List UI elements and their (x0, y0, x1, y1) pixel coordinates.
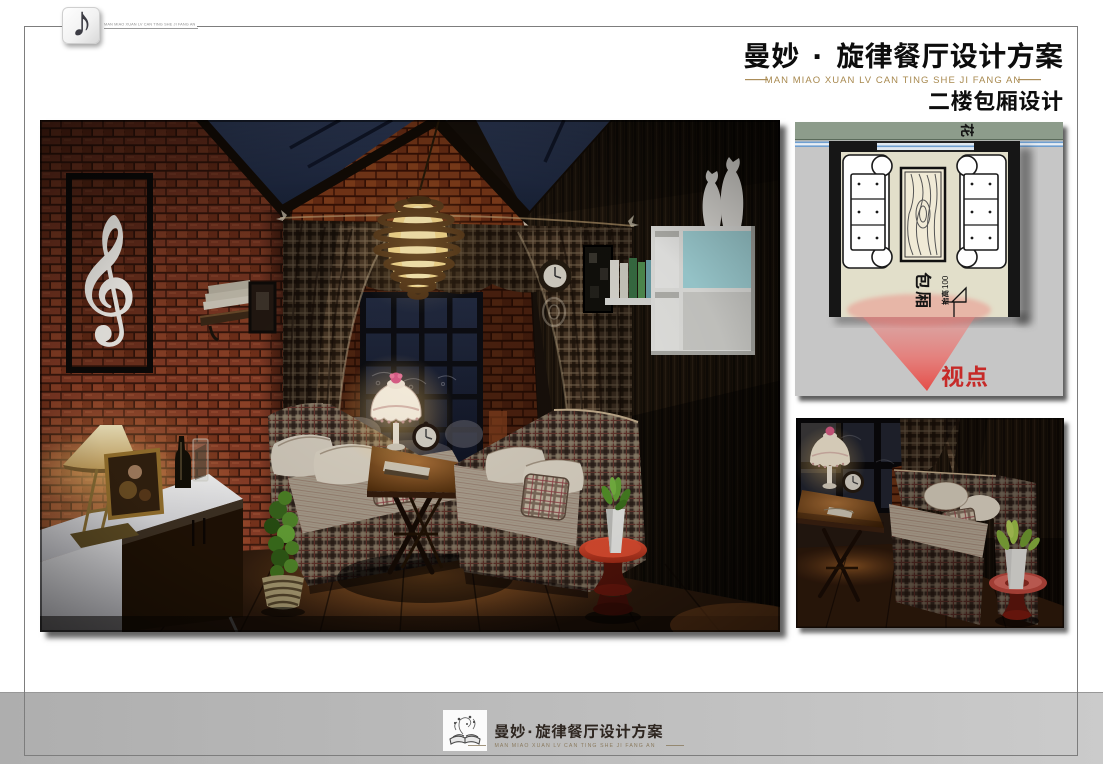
svg-text:MAN MIAO XUAN LV CAN TING SHE: MAN MIAO XUAN LV CAN TING SHE JI FANG AN (494, 743, 655, 749)
svg-text:MAN MIAO XUAN LV CAN TING SHE: MAN MIAO XUAN LV CAN TING SHE JI FANG AN (765, 75, 1022, 86)
svg-text:100: 100 (941, 275, 950, 289)
